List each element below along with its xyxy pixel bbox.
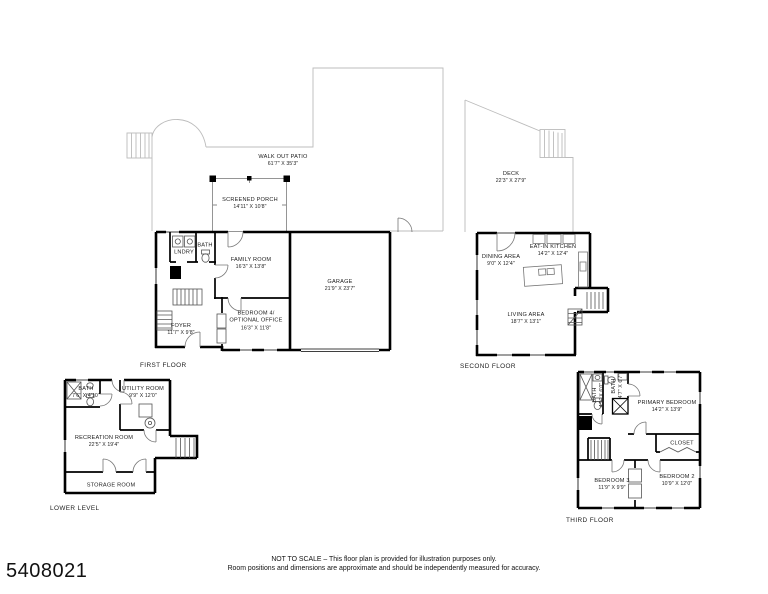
third-floor-title: THIRD FLOOR bbox=[566, 517, 614, 524]
room-label-screened-porch: SCREENED PORCH 14'11" X 10'8" bbox=[222, 197, 278, 211]
room-label-utility-room: UTILITY ROOM 9'9" X 12'0" bbox=[122, 386, 164, 400]
room-label-closet: CLOSET bbox=[670, 440, 694, 447]
chimney-block bbox=[170, 266, 181, 279]
first-floor-plan bbox=[127, 68, 443, 352]
room-label-storage-room: STORAGE ROOM bbox=[87, 482, 136, 489]
second-floor-title: SECOND FLOOR bbox=[460, 363, 516, 370]
room-label-garage: GARAGE 21'9" X 23'7" bbox=[325, 279, 356, 293]
floor-plan-drawing bbox=[0, 0, 768, 594]
room-label-walk-out-patio: WALK OUT PATIO 61'7" X 35'3" bbox=[258, 154, 307, 168]
room-label-bedroom4: BEDROOM 4/ OPTIONAL OFFICE 16'3" X 11'8" bbox=[229, 310, 282, 331]
room-label-living-area: LIVING AREA 18'7" X 13'1" bbox=[507, 312, 544, 326]
first-floor-title: FIRST FLOOR bbox=[140, 362, 187, 369]
disclaimer-line1: NOT TO SCALE – This floor plan is provid… bbox=[0, 556, 768, 563]
kitchen-fixtures bbox=[523, 235, 587, 288]
deck-outline bbox=[465, 100, 573, 232]
room-label-bath2-third: BATH 4'7" X 6'7" bbox=[611, 374, 625, 399]
disclaimer-line2: Room positions and dimensions are approx… bbox=[0, 565, 768, 572]
room-label-eat-in-kitchen: EAT-IN KITCHEN 14'2" X 12'4" bbox=[530, 244, 577, 258]
room-label-bath1-third: BATH 4'9" X 6'0" bbox=[592, 383, 606, 408]
kitchen-island bbox=[523, 265, 562, 287]
floor-plan-page: WALK OUT PATIO 61'7" X 35'3" SCREENED PO… bbox=[0, 0, 768, 594]
third-floor-chimney bbox=[579, 416, 592, 430]
second-floor-doors bbox=[497, 233, 515, 251]
room-label-recreation-room: RECREATION ROOM 22'5" X 19'4" bbox=[75, 435, 133, 449]
room-label-bath-lower: BATH 7'6" X 4'10" bbox=[72, 386, 100, 400]
room-label-primary-bedroom: PRIMARY BEDROOM 14'2" X 13'9" bbox=[638, 400, 697, 414]
room-label-dining-area: DINING AREA 9'0" X 12'4" bbox=[482, 254, 520, 268]
room-label-lndry: LNDRY bbox=[174, 249, 194, 256]
patio-outline bbox=[127, 68, 443, 231]
room-label-family-room: FAMILY ROOM 16'3" X 13'8" bbox=[231, 257, 272, 271]
room-label-foyer: FOYER 11'7" X 9'8" bbox=[167, 323, 194, 337]
lower-level-title: LOWER LEVEL bbox=[50, 505, 100, 512]
room-label-bedroom3: BEDROOM 3 11'9" X 9'9" bbox=[594, 478, 629, 492]
shower-box bbox=[613, 399, 629, 415]
room-label-bedroom2: BEDROOM 2 10'9" X 12'0" bbox=[659, 474, 694, 488]
second-floor-stairs bbox=[568, 292, 603, 325]
room-label-deck: DECK 22'3" X 27'9" bbox=[496, 171, 527, 185]
room-label-bath-first: BATH bbox=[197, 242, 212, 249]
